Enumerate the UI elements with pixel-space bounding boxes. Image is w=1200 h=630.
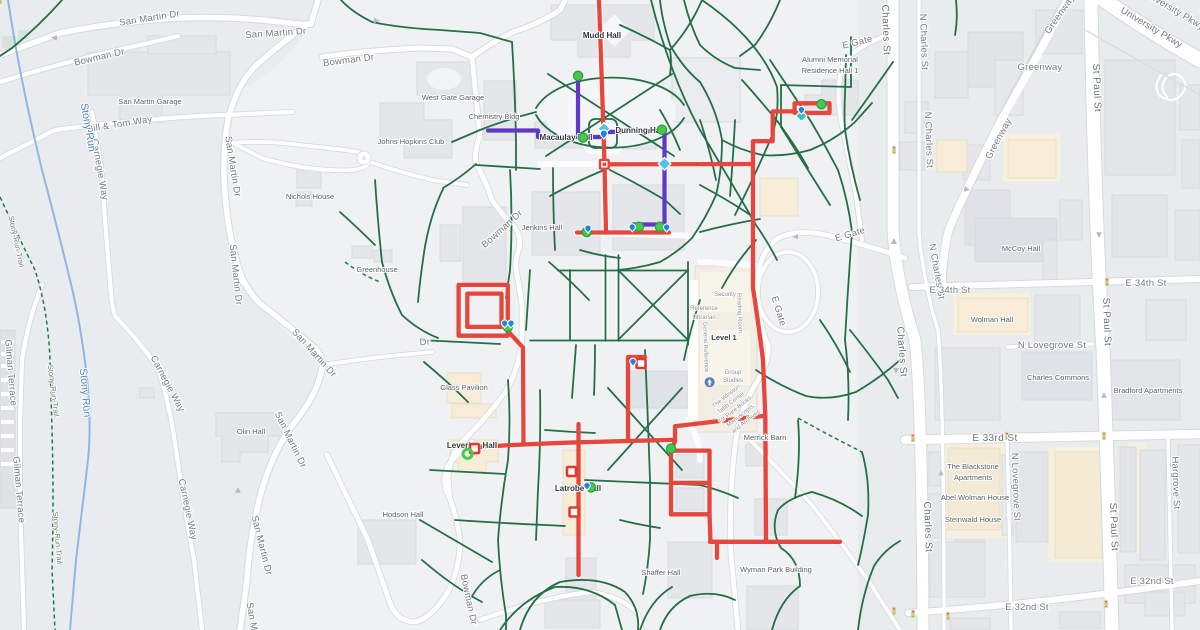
svg-text:E 34th St: E 34th St bbox=[1126, 278, 1167, 289]
svg-text:Nichols House: Nichols House bbox=[286, 192, 334, 201]
svg-text:The Blackstone: The Blackstone bbox=[947, 462, 999, 471]
svg-text:Abel Wolman House: Abel Wolman House bbox=[941, 493, 1009, 502]
svg-text:Olin Hall: Olin Hall bbox=[237, 427, 266, 436]
svg-text:Group: Group bbox=[725, 370, 742, 376]
svg-text:Shaffer Hall: Shaffer Hall bbox=[641, 568, 680, 577]
svg-text:E 34th St: E 34th St bbox=[930, 285, 971, 296]
svg-text:Charles St: Charles St bbox=[921, 501, 934, 552]
svg-text:E 33rd St: E 33rd St bbox=[972, 433, 1017, 444]
svg-text:West Gate Garage: West Gate Garage bbox=[422, 93, 484, 102]
svg-text:Johns Hopkins Club: Johns Hopkins Club bbox=[378, 137, 445, 146]
svg-text:Level 1: Level 1 bbox=[711, 333, 736, 342]
svg-text:Hargrove St: Hargrove St bbox=[1169, 456, 1182, 509]
svg-text:N Lovegrove St: N Lovegrove St bbox=[1018, 340, 1086, 351]
svg-text:E 32nd St: E 32nd St bbox=[1005, 602, 1049, 613]
svg-text:Greenway: Greenway bbox=[1018, 62, 1063, 73]
svg-text:Glass Pavilion: Glass Pavilion bbox=[440, 383, 488, 392]
svg-text:McCoy Hall: McCoy Hall bbox=[1002, 244, 1041, 253]
svg-text:Mudd Hall: Mudd Hall bbox=[583, 31, 621, 40]
svg-text:Wolman Hall: Wolman Hall bbox=[971, 315, 1014, 324]
svg-text:Apartments: Apartments bbox=[954, 473, 993, 482]
svg-text:Security: Security bbox=[714, 292, 736, 298]
svg-text:Hodson Hall: Hodson Hall bbox=[383, 510, 424, 519]
svg-text:San Martin Garage: San Martin Garage bbox=[118, 97, 181, 106]
svg-text:Greenhouse: Greenhouse bbox=[356, 265, 397, 274]
svg-text:Dr: Dr bbox=[419, 337, 430, 349]
svg-text:St Paul St: St Paul St bbox=[1090, 64, 1103, 113]
svg-text:N Charles St: N Charles St bbox=[922, 112, 935, 169]
svg-text:Chemistry Bldg: Chemistry Bldg bbox=[469, 112, 520, 121]
svg-text:Alumni Memorial: Alumni Memorial bbox=[802, 55, 858, 64]
svg-text:Steinwald House: Steinwald House bbox=[945, 515, 1001, 524]
svg-text:Studies: Studies bbox=[723, 378, 743, 384]
svg-text:Librarian: Librarian bbox=[692, 315, 715, 321]
svg-text:Bradford Apartments: Bradford Apartments bbox=[1114, 386, 1183, 395]
svg-text:Merrick Barn: Merrick Barn bbox=[744, 433, 787, 442]
svg-text:Jenkins Hall: Jenkins Hall bbox=[522, 223, 563, 232]
svg-text:Charles Commons: Charles Commons bbox=[1027, 373, 1089, 382]
svg-text:St Paul St: St Paul St bbox=[1107, 503, 1120, 552]
svg-text:Wyman Park Building: Wyman Park Building bbox=[740, 565, 812, 574]
svg-text:Reference: Reference bbox=[690, 306, 718, 312]
svg-text:N Charles St: N Charles St bbox=[917, 14, 930, 71]
svg-text:Residence Hall 1: Residence Hall 1 bbox=[802, 66, 859, 75]
svg-text:Charles St: Charles St bbox=[879, 4, 892, 55]
svg-text:E 32nd St: E 32nd St bbox=[1130, 576, 1174, 587]
svg-text:St Paul St: St Paul St bbox=[1100, 298, 1113, 347]
